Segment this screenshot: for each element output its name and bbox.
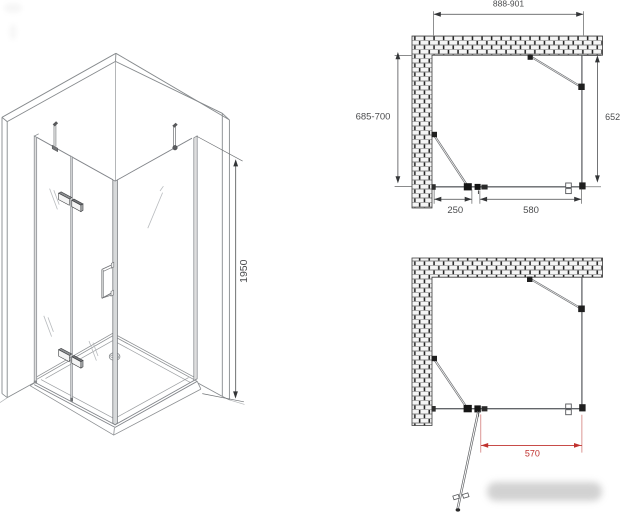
svg-text:250: 250 [447, 205, 463, 216]
svg-text:1950: 1950 [238, 259, 250, 283]
svg-text:888-901: 888-901 [493, 0, 524, 9]
svg-text:685-700: 685-700 [356, 111, 391, 122]
svg-text:570: 570 [525, 448, 540, 458]
svg-text:580: 580 [523, 205, 539, 216]
svg-text:652: 652 [605, 112, 620, 122]
